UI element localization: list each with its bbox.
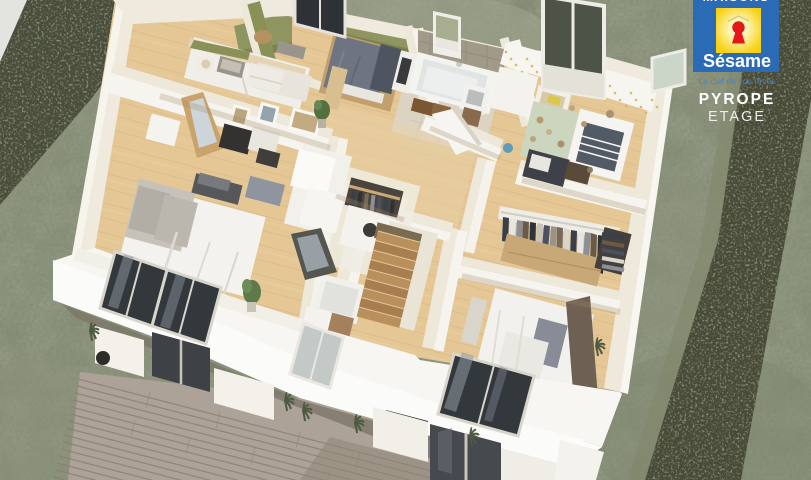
svg-text:PYROPE: PYROPE: [699, 91, 776, 108]
svg-text:La clef de vos rêves: La clef de vos rêves: [698, 76, 776, 86]
svg-text:ETAGE: ETAGE: [708, 109, 766, 125]
svg-text:Sésame: Sésame: [703, 51, 771, 71]
svg-text:MAISONS: MAISONS: [703, 0, 770, 4]
